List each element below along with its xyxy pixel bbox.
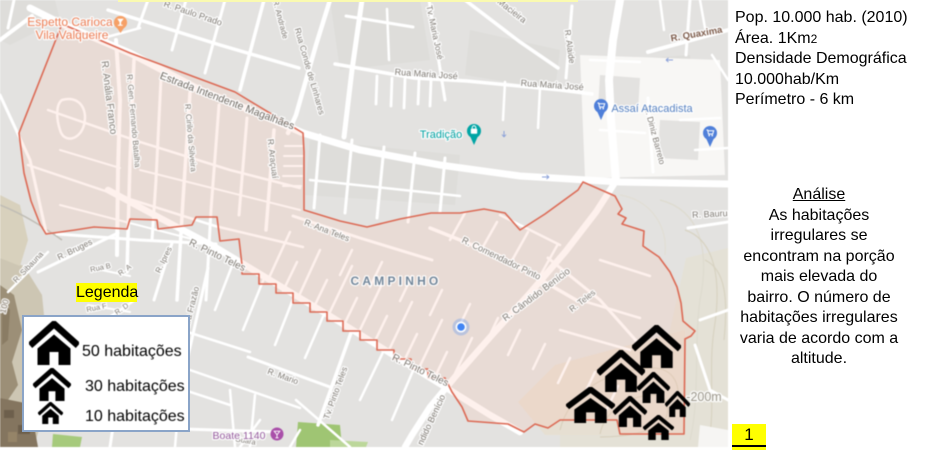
svg-text:Tradição: Tradição: [420, 129, 462, 141]
svg-text:Boate 1140: Boate 1140: [213, 430, 266, 442]
svg-text:30 habitações: 30 habitações: [85, 378, 185, 395]
svg-text:10 habitações: 10 habitações: [85, 408, 185, 425]
svg-text:Espetto Carioca: Espetto Carioca: [27, 15, 113, 29]
svg-text:50 habitações: 50 habitações: [82, 343, 182, 360]
svg-text:CAMPINHO: CAMPINHO: [351, 274, 442, 288]
svg-text:Assaí Atacadista: Assaí Atacadista: [611, 103, 693, 115]
svg-text:-200m: -200m: [686, 390, 721, 404]
svg-text:Vila Valqueire: Vila Valqueire: [36, 28, 109, 42]
